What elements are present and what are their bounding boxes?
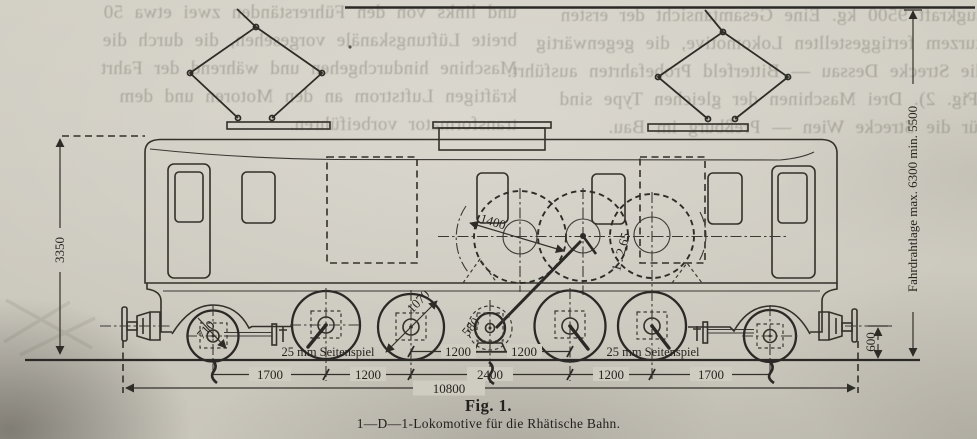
contact-wire-dim-label: Fahrdrahtlage max. 6300 min. 5500 (905, 106, 920, 292)
side-play-right-label: 25 mm Seitenspiel (606, 345, 700, 359)
cab-door-front-window (175, 172, 203, 222)
gear-circle-label: 1400 (479, 211, 508, 233)
connecting-rod (496, 241, 581, 328)
buffer-height-label: 600 (863, 332, 878, 352)
dimension-contact-wire-height: Fahrdrahtlage max. 6300 min. 5500 (904, 10, 922, 356)
pony-diameter-label: 710 (194, 317, 218, 342)
roof-hatch (433, 122, 551, 150)
cab-door-rear-window (778, 173, 807, 223)
dimension-buffer-height: 600 (863, 326, 888, 358)
gear-ratio-label: 1 : 2,65 (608, 231, 633, 273)
d1-d2-spacing-label: 1200 (355, 367, 381, 382)
d3-d4-spacing-label: 1200 (598, 367, 624, 382)
cab-window-front (242, 172, 275, 223)
scan-specks (4, 45, 969, 355)
jack-spacing-left-label: 1200 (445, 344, 471, 359)
scanned-journal-page: und links von den Führerständen zwei etw… (0, 0, 977, 439)
driving-wheel-2: 1070 (378, 287, 444, 381)
jack-spacing-right-label: 1200 (511, 344, 537, 359)
pony-front-spacing-label: 1700 (257, 367, 283, 382)
side-play-left-label: 25 mm Seitenspiel (281, 345, 375, 359)
figure-caption-subtitle: 1—D—1-Lokomotive für die Rhätische Bahn. (0, 416, 977, 432)
ventilation-panel-front (327, 157, 417, 263)
pony-rear-spacing-label: 1700 (698, 367, 724, 382)
body-height-label: 3350 (52, 237, 67, 263)
locomotive-drawing: Fahrdrahtlage max. 6300 min. 5500 3350 (0, 0, 977, 439)
figure-caption-title: Fig. 1. (0, 396, 977, 416)
pantograph-rear (648, 10, 791, 131)
total-wheelbase-label: 10800 (433, 381, 466, 396)
cab-window-rear (708, 173, 742, 224)
ventilation-panel-rear (640, 157, 705, 263)
locomotive-body (145, 122, 837, 291)
pantograph-front (188, 9, 331, 129)
